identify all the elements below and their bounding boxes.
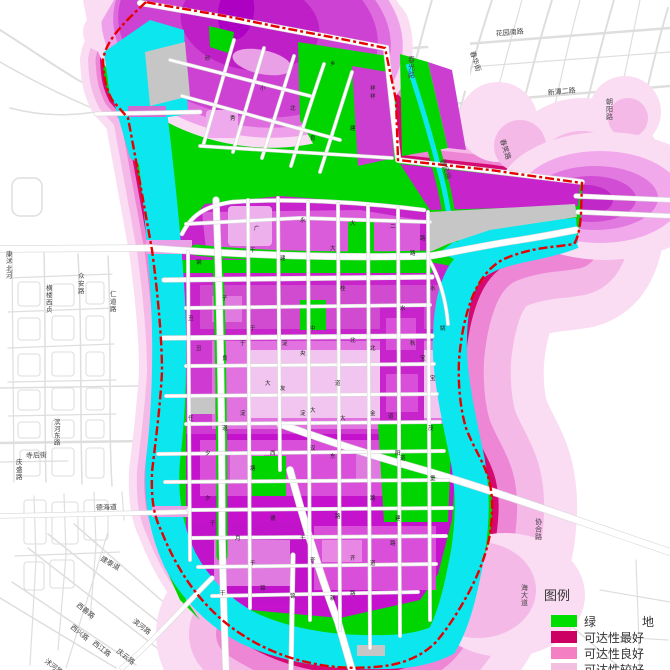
svg-text:干: 干 bbox=[250, 247, 256, 254]
svg-text:路: 路 bbox=[78, 286, 85, 295]
svg-text:桂: 桂 bbox=[340, 284, 346, 292]
svg-text:绿: 绿 bbox=[584, 614, 596, 629]
svg-text:可达性最好: 可达性最好 bbox=[584, 631, 644, 645]
svg-text:海: 海 bbox=[521, 583, 528, 592]
svg-text:北: 北 bbox=[370, 344, 376, 352]
svg-text:滨: 滨 bbox=[54, 417, 61, 426]
svg-text:众: 众 bbox=[78, 272, 85, 280]
svg-text:淀: 淀 bbox=[240, 409, 246, 417]
svg-text:道: 道 bbox=[388, 412, 394, 420]
svg-text:建: 建 bbox=[280, 254, 286, 262]
svg-text:贞: 贞 bbox=[46, 305, 53, 314]
svg-text:良: 良 bbox=[310, 134, 316, 142]
svg-text:永: 永 bbox=[300, 216, 306, 224]
svg-text:祥: 祥 bbox=[370, 92, 376, 100]
svg-text:于: 于 bbox=[210, 520, 216, 527]
svg-text:路: 路 bbox=[54, 437, 61, 446]
svg-text:锦: 锦 bbox=[290, 592, 296, 600]
svg-text:千: 千 bbox=[300, 534, 306, 542]
svg-text:北: 北 bbox=[290, 104, 296, 112]
svg-text:夕: 夕 bbox=[205, 494, 211, 502]
svg-text:庆: 庆 bbox=[16, 457, 23, 466]
svg-text:广: 广 bbox=[254, 224, 260, 232]
svg-text:茂: 茂 bbox=[428, 424, 434, 432]
svg-text:道: 道 bbox=[335, 379, 341, 387]
svg-text:大: 大 bbox=[350, 219, 356, 227]
svg-text:河: 河 bbox=[6, 272, 13, 280]
svg-text:子: 子 bbox=[222, 295, 228, 302]
svg-text:路: 路 bbox=[390, 539, 396, 547]
svg-text:干: 干 bbox=[220, 590, 226, 597]
svg-text:路: 路 bbox=[410, 249, 416, 257]
svg-text:友: 友 bbox=[280, 384, 286, 392]
svg-text:汉: 汉 bbox=[310, 444, 316, 452]
svg-text:道: 道 bbox=[400, 454, 406, 462]
svg-text:祥: 祥 bbox=[370, 84, 376, 92]
svg-text:二: 二 bbox=[390, 224, 396, 230]
svg-text:道: 道 bbox=[110, 296, 117, 305]
svg-text:锦: 锦 bbox=[260, 584, 266, 592]
svg-text:西: 西 bbox=[270, 450, 276, 457]
svg-text:丑: 丑 bbox=[188, 315, 194, 322]
svg-text:可达性较好: 可达性较好 bbox=[584, 662, 644, 670]
svg-text:路: 路 bbox=[110, 304, 117, 313]
svg-text:秀: 秀 bbox=[230, 114, 236, 122]
svg-text:阳: 阳 bbox=[606, 104, 613, 113]
svg-text:沭: 沭 bbox=[6, 256, 13, 265]
svg-text:淀: 淀 bbox=[300, 409, 306, 417]
svg-text:路: 路 bbox=[535, 532, 542, 541]
svg-text:光: 光 bbox=[408, 62, 415, 71]
svg-text:春: 春 bbox=[408, 55, 415, 64]
svg-text:水: 水 bbox=[430, 284, 436, 292]
svg-text:路: 路 bbox=[408, 70, 415, 79]
svg-text:道: 道 bbox=[521, 598, 528, 607]
svg-text:大: 大 bbox=[330, 244, 336, 252]
svg-text:夕: 夕 bbox=[205, 449, 211, 457]
svg-text:路: 路 bbox=[606, 112, 613, 121]
svg-text:地: 地 bbox=[642, 615, 654, 629]
svg-text:东: 东 bbox=[330, 452, 336, 460]
svg-text:楼: 楼 bbox=[46, 290, 53, 299]
svg-text:北: 北 bbox=[350, 336, 356, 344]
svg-text:路: 路 bbox=[16, 472, 23, 481]
svg-text:丑: 丑 bbox=[196, 345, 202, 352]
svg-text:齐: 齐 bbox=[310, 556, 316, 564]
svg-text:河: 河 bbox=[54, 425, 61, 433]
svg-text:安: 安 bbox=[78, 278, 85, 287]
svg-text:千: 千 bbox=[250, 559, 256, 567]
svg-text:良: 良 bbox=[222, 354, 228, 362]
svg-text:砂: 砂 bbox=[205, 54, 211, 62]
svg-text:于: 于 bbox=[250, 325, 256, 332]
svg-text:乡: 乡 bbox=[330, 60, 336, 67]
svg-text:钢: 钢 bbox=[196, 258, 202, 266]
svg-text:建: 建 bbox=[350, 124, 356, 132]
svg-text:堡: 堡 bbox=[430, 474, 436, 482]
svg-text:大: 大 bbox=[265, 379, 271, 387]
svg-text:盛: 盛 bbox=[16, 464, 23, 473]
svg-text:新: 新 bbox=[330, 594, 336, 602]
svg-text:道: 道 bbox=[222, 424, 228, 432]
svg-text:路: 路 bbox=[350, 589, 356, 597]
svg-text:央: 央 bbox=[300, 349, 306, 357]
svg-text:大: 大 bbox=[521, 590, 528, 599]
svg-text:仁: 仁 bbox=[110, 289, 117, 298]
svg-text:朝: 朝 bbox=[606, 98, 613, 106]
svg-text:合: 合 bbox=[535, 524, 542, 533]
svg-text:可达性良好: 可达性良好 bbox=[584, 646, 644, 661]
svg-text:东: 东 bbox=[54, 431, 61, 440]
svg-text:路: 路 bbox=[420, 234, 426, 242]
svg-text:塘: 塘 bbox=[250, 464, 256, 472]
svg-text:齐: 齐 bbox=[350, 554, 356, 562]
svg-text:德: 德 bbox=[270, 514, 276, 522]
svg-text:金: 金 bbox=[370, 409, 376, 417]
svg-text:月: 月 bbox=[235, 535, 241, 542]
svg-text:建: 建 bbox=[395, 514, 401, 522]
svg-text:路: 路 bbox=[370, 494, 376, 502]
svg-text:大: 大 bbox=[310, 406, 316, 414]
svg-text:路: 路 bbox=[335, 512, 341, 520]
svg-text:小: 小 bbox=[260, 84, 266, 92]
svg-text:水: 水 bbox=[400, 304, 406, 312]
svg-text:道: 道 bbox=[370, 559, 376, 567]
svg-text:宝: 宝 bbox=[420, 354, 426, 362]
svg-text:图例: 图例 bbox=[544, 588, 570, 603]
svg-text:姚: 姚 bbox=[440, 324, 446, 332]
svg-text:横: 横 bbox=[46, 283, 53, 292]
svg-text:宝: 宝 bbox=[430, 374, 436, 382]
svg-text:大: 大 bbox=[340, 414, 346, 422]
svg-text:协: 协 bbox=[535, 517, 542, 526]
svg-text:中: 中 bbox=[310, 324, 316, 332]
svg-text:任: 任 bbox=[188, 414, 194, 422]
svg-text:淀: 淀 bbox=[282, 339, 288, 347]
svg-text:秋: 秋 bbox=[410, 339, 416, 347]
svg-text:康: 康 bbox=[6, 249, 13, 258]
svg-text:北: 北 bbox=[6, 264, 13, 272]
svg-text:西: 西 bbox=[46, 298, 53, 306]
svg-text:于: 于 bbox=[240, 340, 246, 347]
